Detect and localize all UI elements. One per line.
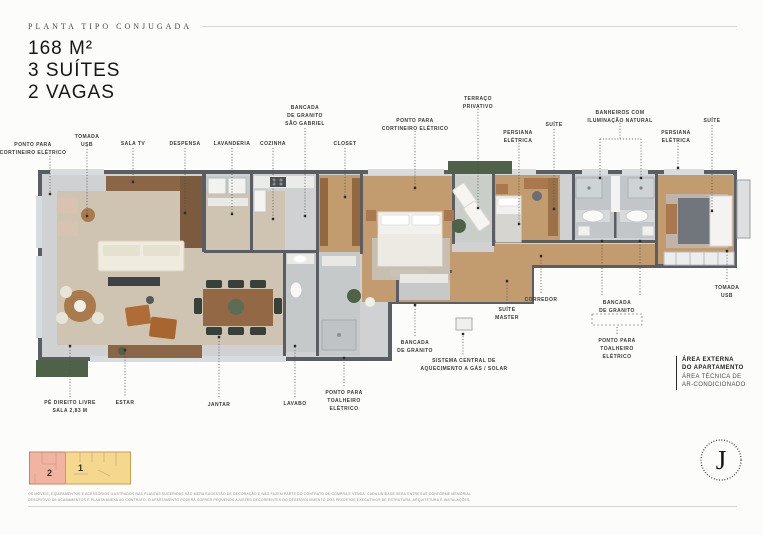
wardrobe-open — [664, 252, 734, 265]
lightwell — [611, 176, 620, 212]
suite-label-2-marker — [711, 210, 713, 212]
water-heater — [456, 318, 472, 330]
side-table-small — [146, 296, 154, 304]
bancada-granito-sao-gabriel-marker — [304, 215, 306, 217]
dining-chair — [206, 280, 222, 288]
closet-wardrobe — [320, 178, 328, 246]
area-externa-line4: AR-CONDICIONADO — [682, 381, 746, 389]
dining-chair — [274, 298, 282, 314]
ponto-cortineiro-eletrico-1-marker — [49, 193, 51, 195]
area-externa-note: ÁREA EXTERNA DO APARTAMENTO ÁREA TÉCNICA… — [676, 356, 746, 390]
hedge-bottom — [36, 360, 88, 377]
pantry-cabinets — [180, 176, 202, 248]
area-externa-line1: ÁREA EXTERNA — [682, 356, 746, 364]
bath2-counter — [322, 256, 356, 266]
dining-chair — [228, 327, 244, 335]
bottom-rule — [28, 506, 737, 507]
despensa-marker — [184, 212, 186, 214]
pillow — [381, 215, 409, 225]
bancada-granito-2-marker — [639, 240, 641, 242]
dining-chair — [250, 280, 266, 288]
bed-head — [710, 196, 732, 246]
lavabo-basin — [294, 256, 306, 263]
area-externa-line3: ÁREA TÉCNICA DE — [682, 373, 746, 381]
sistema-central-aquecimento-marker — [462, 333, 464, 335]
key-plan-number-1: 1 — [78, 463, 83, 473]
dryer — [228, 178, 246, 194]
sala-tv-marker — [132, 181, 134, 183]
master-bath-counter — [400, 274, 448, 283]
sofa-cushion — [103, 245, 140, 256]
key-plan-number-2: 2 — [47, 468, 52, 478]
washer — [208, 178, 226, 194]
lavanderia-marker — [231, 213, 233, 215]
basin — [582, 210, 604, 222]
closet-marker — [344, 196, 346, 198]
laundry-counter — [208, 198, 248, 206]
toilet — [642, 226, 654, 236]
bancada-callout-box — [592, 314, 642, 325]
ponto-cortineiro-eletrico-2-marker — [414, 187, 416, 189]
dresser — [666, 204, 677, 234]
suite-3 — [664, 194, 734, 265]
estar-marker — [124, 349, 126, 351]
pillow — [412, 215, 440, 225]
plant-white — [365, 297, 375, 307]
desk — [524, 178, 550, 189]
pe-direito-livre-marker — [69, 345, 71, 347]
dining-chair — [194, 298, 202, 314]
key-plan: 2 1 — [28, 450, 132, 486]
brand-seal-graphic: J — [697, 436, 745, 484]
nightstand — [496, 184, 508, 194]
terrace-plant — [452, 219, 466, 233]
persiana-eletrica-2-marker — [677, 167, 679, 169]
basin — [626, 210, 648, 222]
plant — [347, 289, 361, 303]
disclaimer-line2: DESCRITIVO DE ACABAMENTOS E PLANTA ANEXA… — [28, 498, 471, 502]
suite-label-1-marker — [553, 208, 555, 210]
table-decor — [74, 300, 86, 312]
toilet — [290, 282, 302, 298]
blanket — [496, 214, 521, 242]
fridge — [254, 190, 266, 212]
tomada-usb-2-marker — [726, 250, 728, 252]
wardrobe — [548, 178, 558, 236]
jantar-marker — [218, 336, 220, 338]
disclaimer: OS MÓVEIS, EQUIPAMENTOS E ACESSÓRIOS ILU… — [28, 491, 594, 503]
cozinha-marker — [272, 218, 274, 220]
armchair — [58, 198, 78, 213]
duvet-gray — [678, 198, 712, 244]
toilet — [578, 226, 590, 236]
bancada-granito-2-marker — [601, 240, 603, 242]
corredor-marker — [540, 255, 542, 257]
cooktop — [270, 177, 286, 187]
key-plan-zone-1 — [66, 452, 131, 484]
coffee-table — [108, 277, 160, 286]
hedge-top — [448, 161, 512, 174]
chair — [56, 312, 68, 324]
ac-technical-area — [737, 180, 750, 238]
sofa-cushion — [143, 245, 180, 256]
lavabo-marker — [294, 345, 296, 347]
dining-chair — [228, 280, 244, 288]
persiana-eletrica-1-marker — [518, 223, 520, 225]
closet-wardrobe — [352, 178, 360, 246]
pillow — [498, 198, 519, 206]
suite-master-marker — [506, 280, 508, 282]
disclaimer-line1: OS MÓVEIS, EQUIPAMENTOS E ACESSÓRIOS ILU… — [28, 492, 471, 496]
shower-drain — [337, 333, 341, 337]
bancada-granito-1-marker — [414, 304, 416, 306]
duvet — [378, 234, 442, 266]
area-externa-line2: DO APARTAMENTO — [682, 364, 746, 372]
nightstand — [444, 210, 454, 221]
lavabo-floor — [285, 252, 316, 352]
brand-seal: J — [697, 436, 745, 484]
centerpiece — [228, 299, 244, 315]
desk-chair — [532, 191, 542, 201]
banheiros-iluminacao-natural-marker — [599, 177, 601, 179]
chair — [92, 312, 104, 324]
leather-armchair — [125, 304, 151, 326]
terraco-privativo-marker — [477, 207, 479, 209]
dining-chair — [206, 327, 222, 335]
nightstand — [366, 210, 376, 221]
chair — [60, 286, 72, 298]
ponto-toalheiro-eletrico-1-marker — [343, 357, 345, 359]
banheiros-iluminacao-natural-marker — [640, 177, 642, 179]
tomada-usb-1-marker — [86, 215, 88, 217]
floorplan-sheet: PLANTA TIPO CONJUGADA 168 M² 3 SUÍTES 2 … — [0, 0, 763, 535]
seal-letter: J — [716, 445, 727, 475]
armchair — [58, 221, 78, 236]
leather-armchair — [149, 316, 177, 339]
dining-chair — [250, 327, 266, 335]
